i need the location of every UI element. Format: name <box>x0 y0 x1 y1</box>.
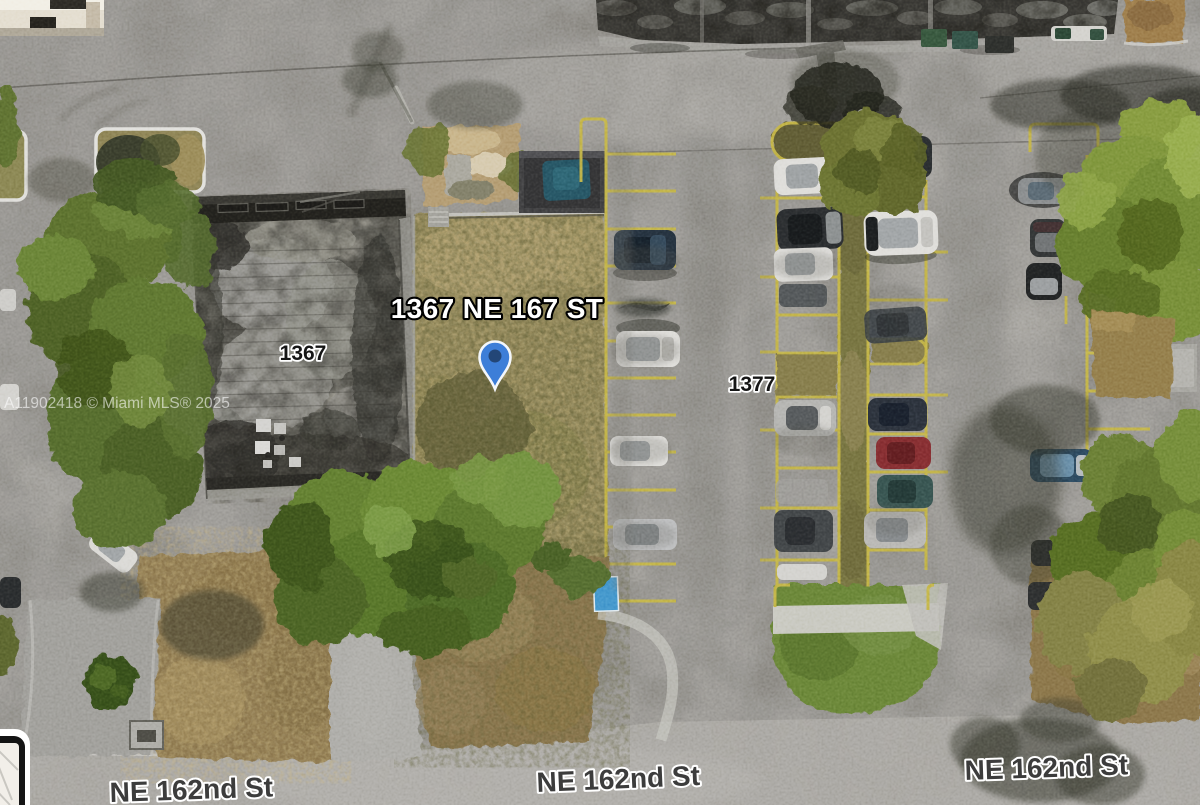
svg-text:1367: 1367 <box>280 342 327 365</box>
svg-text:NE 162nd St: NE 162nd St <box>964 749 1128 786</box>
svg-text:NE 162nd St: NE 162nd St <box>109 771 273 805</box>
svg-text:1367 NE 167 ST: 1367 NE 167 ST <box>391 293 604 324</box>
svg-text:1377: 1377 <box>729 373 776 396</box>
svg-text:A11902418 © Miami MLS® 2025: A11902418 © Miami MLS® 2025 <box>4 395 230 412</box>
